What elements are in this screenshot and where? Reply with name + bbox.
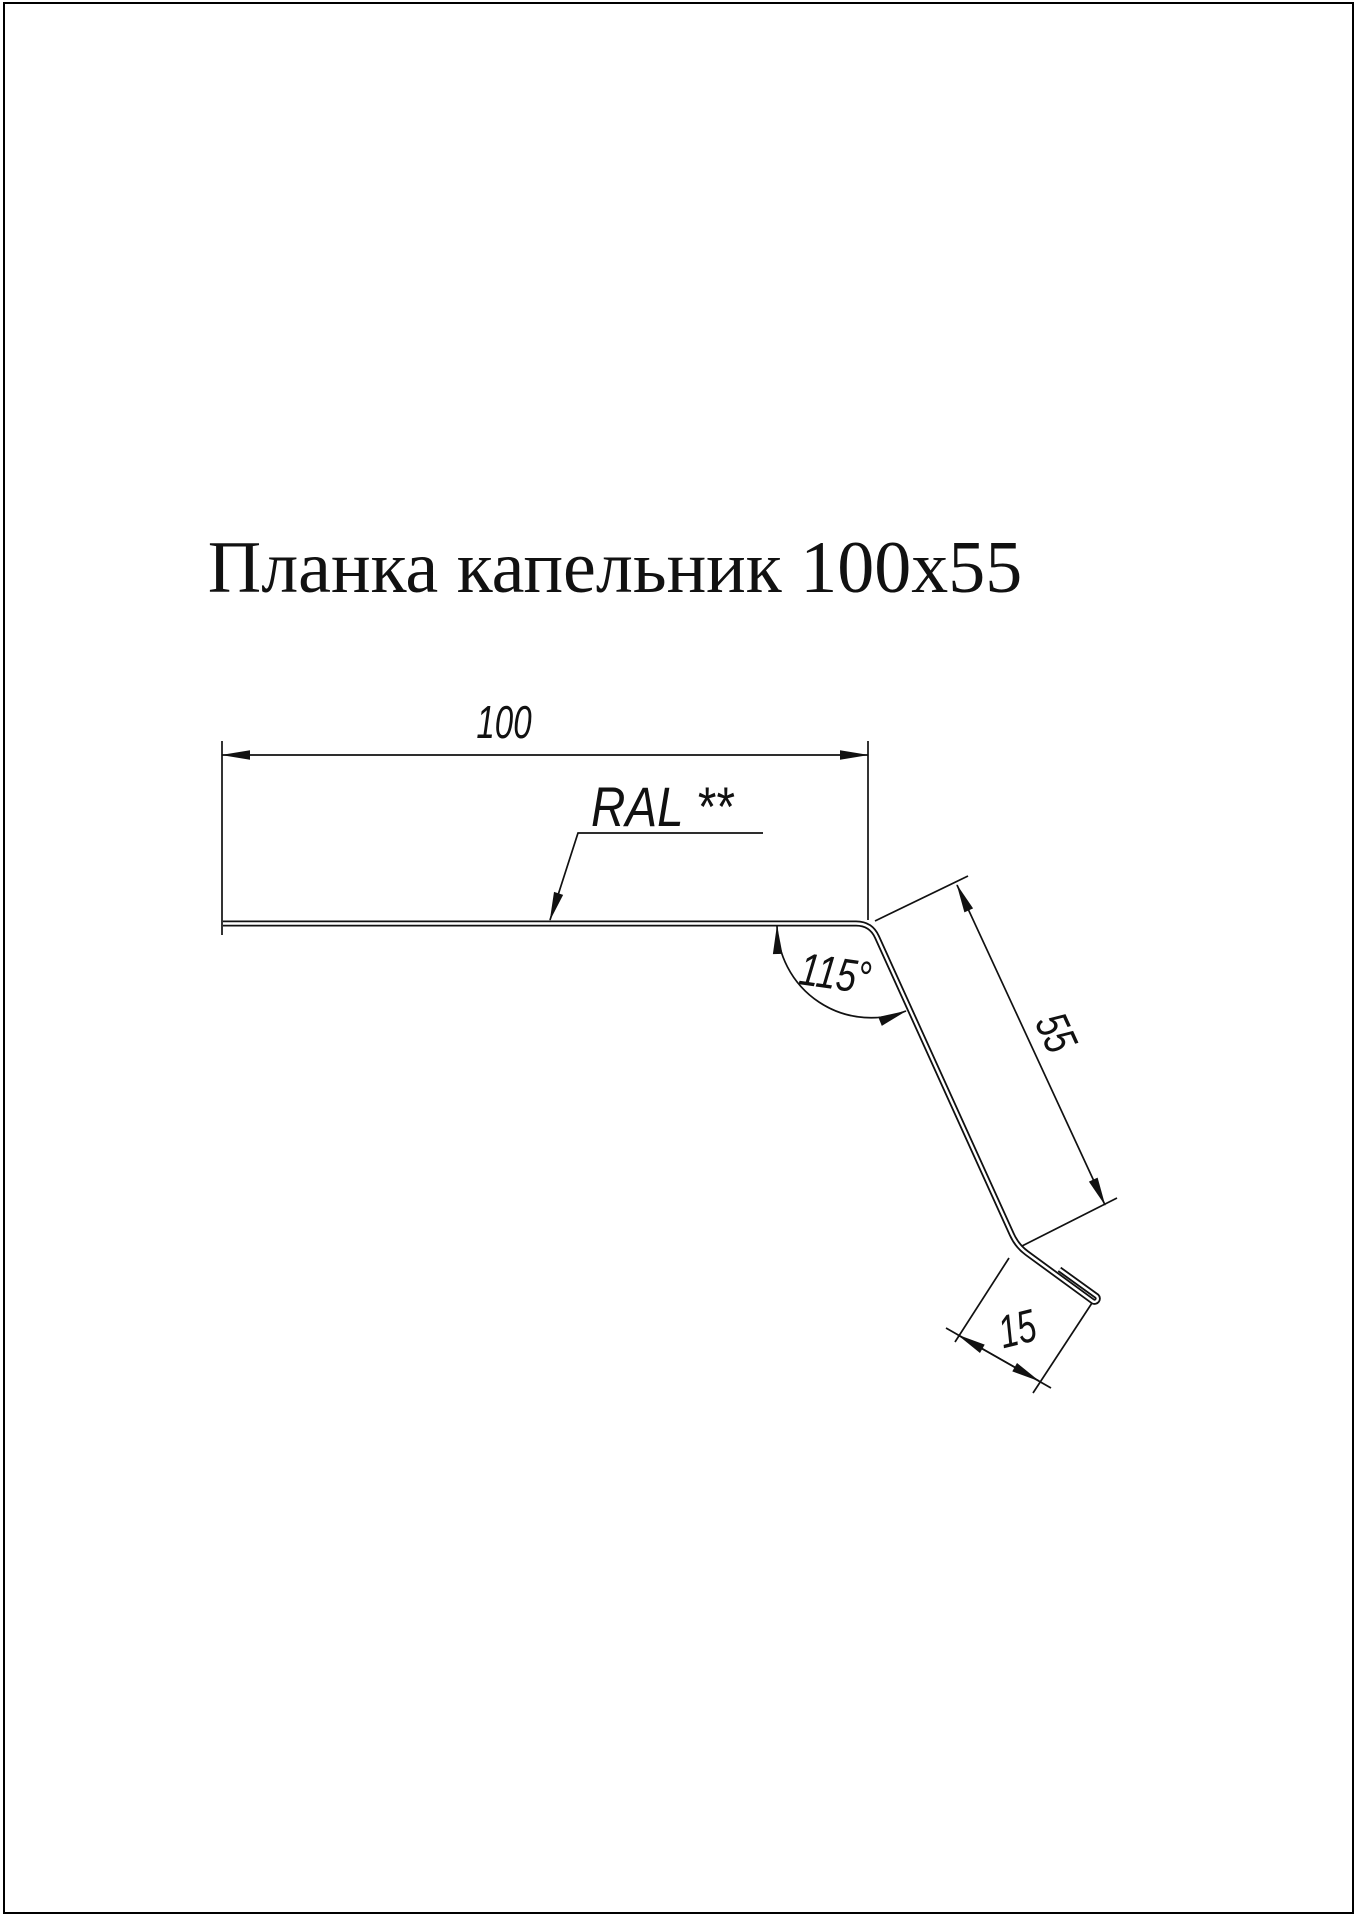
drop-extension-line-top — [875, 876, 968, 921]
angle-dimension-label: 115° — [796, 943, 874, 1004]
coating-label: RAL ** — [591, 776, 735, 838]
width-dimension-label: 100 — [476, 698, 531, 748]
coating-leader-group: RAL ** — [550, 776, 763, 920]
profile-outline — [223, 924, 1098, 1302]
coating-leader-line — [550, 833, 763, 920]
drop-dimension-group: 55 — [875, 876, 1117, 1246]
drawing-sheet-page: Планка капельник 100x55 100 RAL ** 115° — [3, 2, 1354, 1914]
angle-dimension-group: 115° — [777, 926, 906, 1018]
technical-drawing: Планка капельник 100x55 100 RAL ** 115° — [5, 4, 1359, 1924]
profile-core — [223, 924, 1098, 1302]
page-title: Планка капельник 100x55 — [208, 527, 1022, 609]
profile-group — [223, 924, 1098, 1302]
drop-extension-line-bottom — [1022, 1198, 1117, 1246]
hem-dimension-label: 15 — [993, 1300, 1042, 1358]
width-dimension-group: 100 — [222, 698, 868, 935]
hem-extension-line-bottom — [1033, 1303, 1092, 1393]
